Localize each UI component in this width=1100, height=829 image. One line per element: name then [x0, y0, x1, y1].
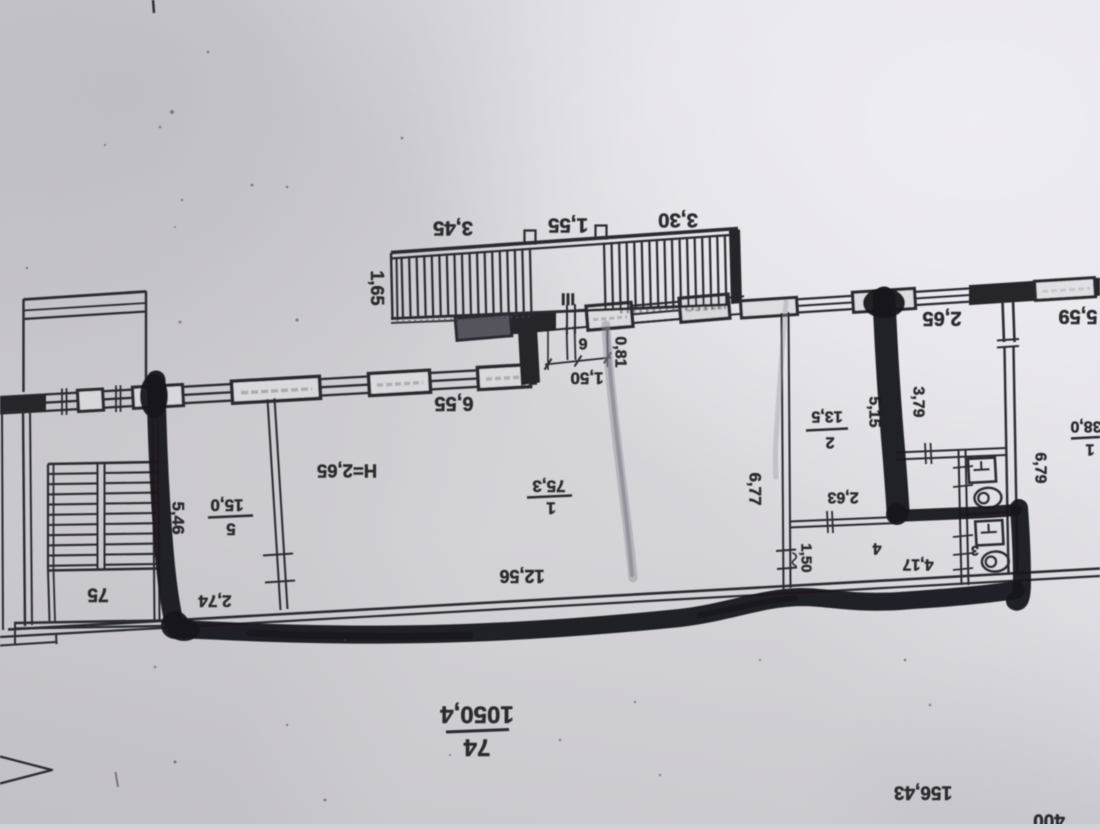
- svg-text:75,3: 75,3: [532, 477, 565, 496]
- svg-text:12,56: 12,56: [499, 566, 544, 586]
- svg-text:74: 74: [463, 734, 490, 761]
- svg-text:1050,4: 1050,4: [440, 701, 514, 728]
- svg-text:3,79: 3,79: [910, 386, 927, 417]
- svg-text:15,0: 15,0: [210, 496, 243, 515]
- svg-text:4,17: 4,17: [902, 556, 933, 573]
- svg-text:0,81: 0,81: [612, 336, 629, 367]
- svg-text:1: 1: [1085, 441, 1094, 458]
- svg-text:1: 1: [546, 499, 555, 518]
- svg-text:III: III: [561, 290, 575, 309]
- svg-text:6,55: 6,55: [435, 392, 474, 414]
- svg-text:75: 75: [87, 584, 109, 605]
- svg-text:1,65: 1,65: [367, 270, 387, 305]
- svg-text:400: 400: [1033, 810, 1065, 825]
- svg-text:2: 2: [825, 434, 834, 451]
- svg-text:13,5: 13,5: [811, 408, 842, 425]
- svg-text:6: 6: [578, 335, 587, 352]
- svg-text:6,77: 6,77: [746, 472, 765, 505]
- svg-text:38,0: 38,0: [1070, 418, 1100, 435]
- svg-text:2,74: 2,74: [198, 592, 232, 611]
- svg-text:1,55: 1,55: [548, 214, 588, 237]
- svg-text:156,43: 156,43: [894, 782, 952, 803]
- svg-text:4: 4: [872, 540, 881, 557]
- svg-text:3,30: 3,30: [658, 209, 698, 232]
- svg-text:3: 3: [971, 543, 979, 559]
- svg-text:5: 5: [226, 520, 235, 539]
- svg-text:H=2,65: H=2,65: [317, 461, 377, 482]
- svg-text:2,63: 2,63: [827, 489, 858, 506]
- svg-text:3,45: 3,45: [433, 217, 473, 240]
- svg-text:6,79: 6,79: [1032, 452, 1049, 483]
- svg-text:1,50: 1,50: [570, 369, 603, 388]
- svg-text:1,50: 1,50: [798, 543, 815, 572]
- svg-text:2,65: 2,65: [923, 307, 962, 329]
- svg-text:5,59: 5,59: [1059, 305, 1098, 327]
